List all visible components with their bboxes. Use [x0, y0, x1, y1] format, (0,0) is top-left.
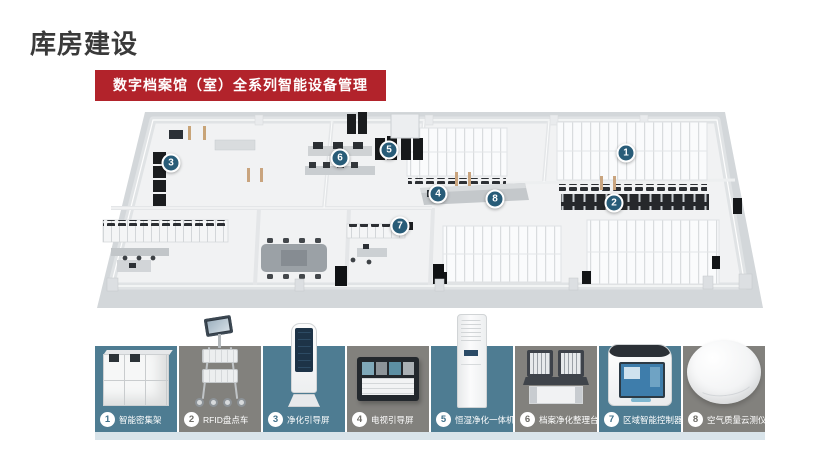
equipment-label: 档案净化整理台 [539, 414, 599, 426]
equipment-number-badge: 2 [184, 412, 199, 427]
purify-kiosk-image [288, 323, 320, 407]
equipment-tile-purify-kiosk: 3净化引导屏 [263, 346, 345, 432]
equipment-number-badge: 3 [268, 412, 283, 427]
page-title: 库房建设 [30, 24, 138, 61]
rfid-cart-image [193, 317, 247, 407]
equipment-number-badge: 6 [520, 412, 535, 427]
equipment-number-badge: 5 [436, 412, 451, 427]
subtitle-banner: 数字档案馆（室）全系列智能设备管理 [95, 70, 386, 101]
plan-marker-4: 4 [429, 185, 448, 204]
equipment-tile-air-monitor: 8空气质量云测仪 [683, 346, 765, 432]
equipment-label: 恒湿净化一体机 [455, 414, 515, 426]
floor-plan-rendering [95, 108, 765, 313]
equipment-tile-area-controller: 7区域智能控制器 [599, 346, 681, 432]
bottom-accent-strip [95, 432, 765, 440]
tv-guide-screen-image [357, 357, 419, 401]
cleaning-desk-image [523, 350, 589, 406]
equipment-number-badge: 7 [604, 412, 619, 427]
area-controller-image [608, 344, 672, 406]
plan-marker-8: 8 [486, 190, 505, 209]
plan-marker-5: 5 [380, 141, 399, 160]
equipment-label: RFID盘点车 [203, 414, 248, 426]
plan-marker-3: 3 [162, 154, 181, 173]
plan-marker-2: 2 [605, 194, 624, 213]
humidity-purifier-image [457, 314, 487, 408]
smart-shelving-image [103, 348, 169, 406]
equipment-label: 空气质量云测仪 [707, 414, 767, 426]
plan-marker-7: 7 [391, 217, 410, 236]
equipment-number-badge: 1 [100, 412, 115, 427]
plan-marker-1: 1 [617, 144, 636, 163]
plan-marker-6: 6 [331, 149, 350, 168]
floor-plan-illustration: 1 2 3 4 5 6 7 8 [95, 108, 765, 313]
equipment-tile-cleaning-desk: 6档案净化整理台 [515, 346, 597, 432]
slide: 库房建设 数字档案馆（室）全系列智能设备管理 [0, 0, 829, 460]
equipment-tile-rfid-cart: 2RFID盘点车 [179, 346, 261, 432]
equipment-label: 净化引导屏 [287, 414, 330, 426]
equipment-label: 区域智能控制器 [623, 414, 683, 426]
equipment-label: 智能密集架 [119, 414, 162, 426]
equipment-label: 电视引导屏 [371, 414, 414, 426]
equipment-tile-humidity-unit: 5恒湿净化一体机 [431, 346, 513, 432]
equipment-tile-tv-screen: 4电视引导屏 [347, 346, 429, 432]
equipment-number-badge: 4 [352, 412, 367, 427]
equipment-row: 1智能密集架 2RFID盘点车 3净化引导屏 4电视引导屏 [95, 346, 765, 432]
equipment-number-badge: 8 [688, 412, 703, 427]
air-quality-disc-image [687, 340, 761, 404]
equipment-tile-smart-shelving: 1智能密集架 [95, 346, 177, 432]
